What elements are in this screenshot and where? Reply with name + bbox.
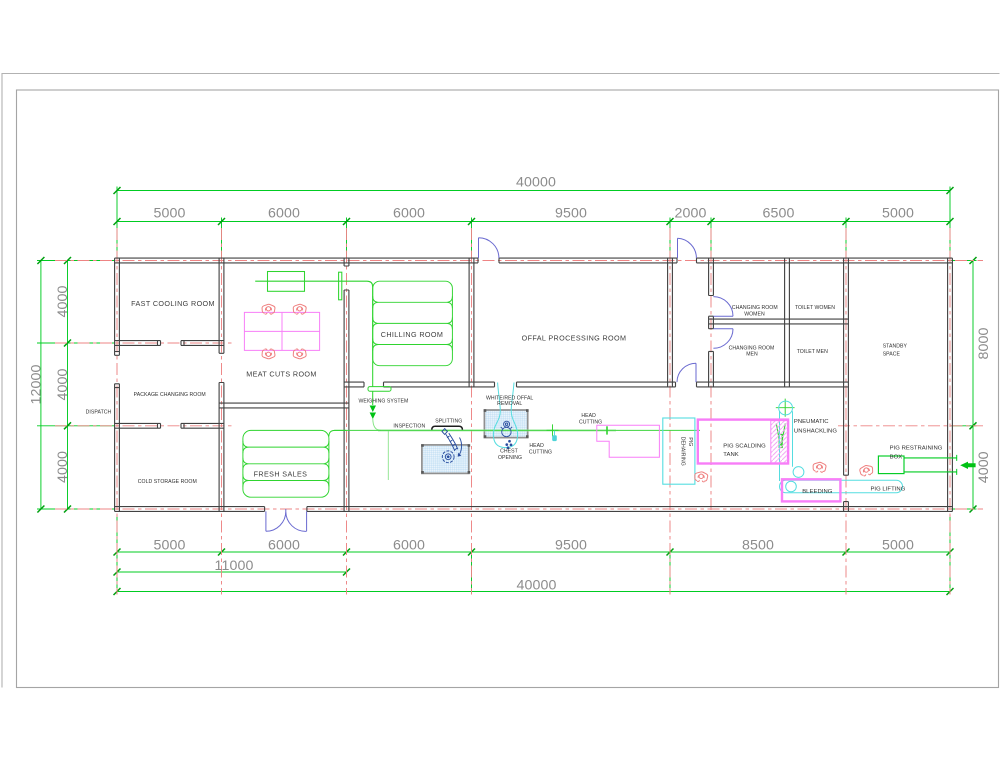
svg-text:BOX: BOX <box>890 454 903 460</box>
svg-text:5000: 5000 <box>882 537 914 553</box>
svg-text:5000: 5000 <box>154 537 186 553</box>
svg-text:HEAD: HEAD <box>581 413 596 419</box>
svg-text:8500: 8500 <box>742 537 774 553</box>
svg-text:CHANGING ROOM: CHANGING ROOM <box>732 305 778 311</box>
svg-text:4000: 4000 <box>55 286 71 318</box>
svg-text:INSPECTION: INSPECTION <box>393 424 425 430</box>
svg-text:5000: 5000 <box>154 206 186 222</box>
svg-text:4000: 4000 <box>976 451 992 483</box>
svg-text:SPLITTING: SPLITTING <box>435 418 462 424</box>
svg-text:11000: 11000 <box>215 558 254 574</box>
svg-text:6000: 6000 <box>268 206 300 222</box>
svg-text:CUTTING: CUTTING <box>579 420 602 426</box>
svg-text:9500: 9500 <box>555 206 587 222</box>
svg-text:40000: 40000 <box>516 175 556 191</box>
svg-text:OFFAL PROCESSING ROOM: OFFAL PROCESSING ROOM <box>522 334 627 343</box>
svg-text:40000: 40000 <box>517 578 557 594</box>
svg-text:6000: 6000 <box>393 206 425 222</box>
svg-text:FRESH SALES: FRESH SALES <box>254 469 308 478</box>
svg-text:WOMEN: WOMEN <box>744 311 765 317</box>
svg-text:PIG LIFTING: PIG LIFTING <box>870 487 905 493</box>
svg-text:TOILET MEN: TOILET MEN <box>797 349 828 355</box>
svg-text:DEHAIRING: DEHAIRING <box>680 437 686 466</box>
svg-text:12000: 12000 <box>28 365 44 405</box>
svg-text:PNEUMATIC: PNEUMATIC <box>794 419 829 425</box>
svg-text:PACKAGE CHANGING ROOM: PACKAGE CHANGING ROOM <box>134 392 206 398</box>
svg-text:MEN: MEN <box>746 351 758 357</box>
svg-text:PIG: PIG <box>687 437 693 446</box>
svg-text:REMOVAL: REMOVAL <box>497 401 522 407</box>
svg-text:COLD STORAGE ROOM: COLD STORAGE ROOM <box>138 479 197 485</box>
svg-text:MEAT CUTS ROOM: MEAT CUTS ROOM <box>246 369 317 378</box>
svg-text:STANDBY: STANDBY <box>883 344 908 350</box>
svg-text:6000: 6000 <box>268 537 300 553</box>
svg-text:CUTTING: CUTTING <box>529 449 552 455</box>
svg-text:HEAD: HEAD <box>529 443 544 449</box>
svg-text:8000: 8000 <box>976 328 992 360</box>
svg-text:9500: 9500 <box>555 537 587 553</box>
svg-text:PIG RESTRAINING: PIG RESTRAINING <box>890 446 943 452</box>
svg-text:WEIGHING SYSTEM: WEIGHING SYSTEM <box>358 398 408 404</box>
svg-text:TOILET WOMEN: TOILET WOMEN <box>795 305 835 311</box>
svg-text:FAST COOLING ROOM: FAST COOLING ROOM <box>131 299 215 308</box>
svg-text:6500: 6500 <box>763 206 795 222</box>
svg-text:DISPATCH: DISPATCH <box>86 409 112 415</box>
svg-text:OPENING: OPENING <box>498 455 522 461</box>
svg-text:UNSHACKLING: UNSHACKLING <box>794 428 837 434</box>
svg-text:5000: 5000 <box>882 206 914 222</box>
svg-text:6000: 6000 <box>393 537 425 553</box>
svg-text:SPACE: SPACE <box>883 351 901 357</box>
svg-text:BLEEDING: BLEEDING <box>802 489 833 495</box>
svg-text:CHEST: CHEST <box>500 449 518 455</box>
svg-text:CHILLING ROOM: CHILLING ROOM <box>381 330 443 339</box>
svg-text:4000: 4000 <box>55 451 71 483</box>
svg-text:TANK: TANK <box>723 452 738 458</box>
svg-text:4000: 4000 <box>55 369 71 401</box>
svg-text:2000: 2000 <box>675 206 707 222</box>
svg-text:PIG SCALDING: PIG SCALDING <box>723 444 766 450</box>
